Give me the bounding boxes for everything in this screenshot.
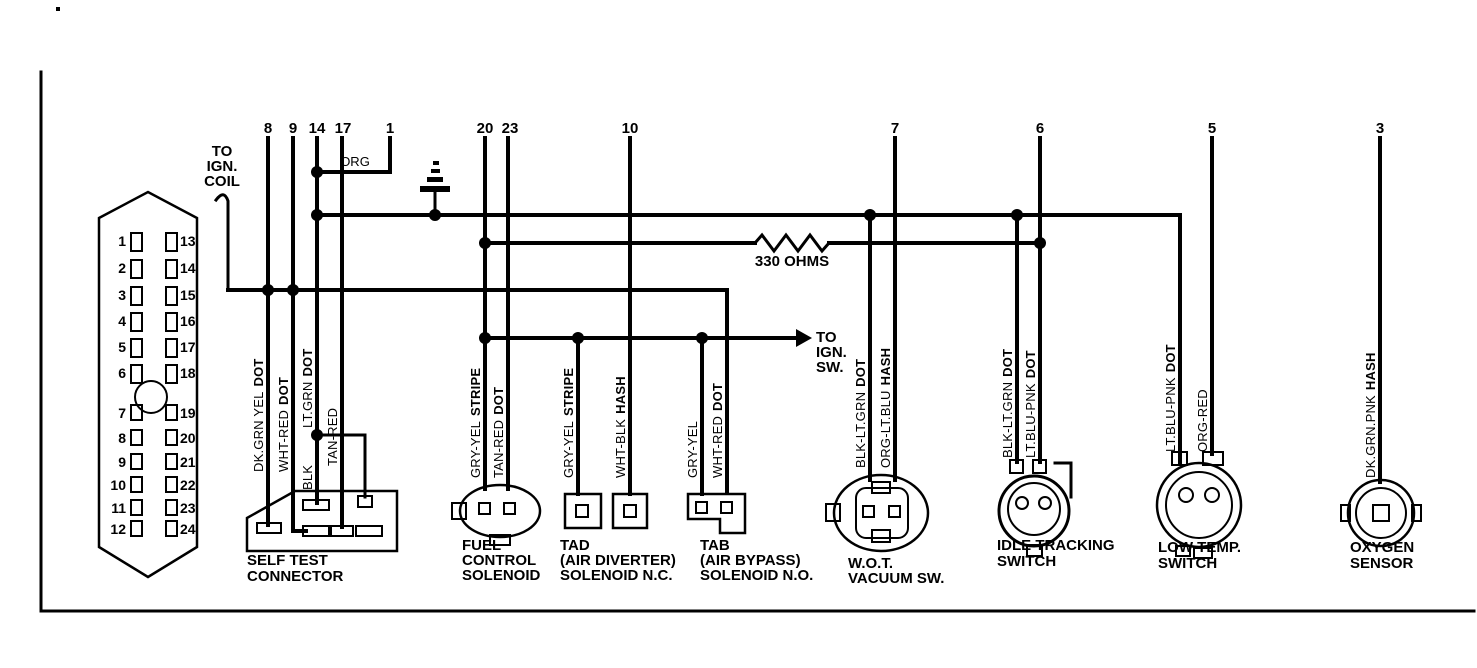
to-ign-sw-label: SW. (816, 359, 844, 376)
tad-solenoid: TAD (AIR DIVERTER) SOLENOID N.C. (560, 494, 676, 584)
low-temp-label: SWITCH (1158, 555, 1217, 572)
junction-dot (311, 166, 323, 178)
connector-right-slots (166, 233, 177, 536)
pin-number: 9 (118, 454, 126, 470)
wire-label: LT.GRNDOT (300, 348, 315, 428)
wire-label: ORG-RED (1195, 389, 1210, 452)
tad-label: SOLENOID N.C. (560, 567, 673, 584)
wire-color-labels: DK.GRN YELDOT WHT-REDDOT BLK LT.GRNDOT T… (251, 344, 1378, 490)
ground-symbol (420, 161, 450, 215)
circuit-pin-8: 8 (264, 120, 272, 137)
resistor-value-label: 330 OHMS (755, 253, 829, 270)
junction-dot (864, 209, 876, 221)
to-ign-coil-label: COIL (204, 173, 240, 190)
oxygen-label: SENSOR (1350, 555, 1414, 572)
self-test-connector: SELF TEST CONNECTOR (247, 491, 397, 585)
resistor-zigzag (755, 235, 829, 251)
junction-dot (287, 284, 299, 296)
wire-label: GRY-YELSTRIPE (561, 368, 576, 478)
pin-number: 10 (110, 477, 126, 493)
wire-label: GRY-YELSTRIPE (468, 368, 483, 478)
tad-terminal (624, 505, 636, 517)
tad-terminal (576, 505, 588, 517)
circuit-pin-6: 6 (1036, 120, 1044, 137)
idle-terminal (1039, 497, 1051, 509)
circuit-pin-9: 9 (289, 120, 297, 137)
oxygen-body (1348, 480, 1414, 546)
junction-dot (1011, 209, 1023, 221)
connector-pin-numbers: 1 2 3 4 5 6 7 8 9 10 11 12 13 14 15 16 1… (110, 233, 195, 537)
callouts: TO IGN. COIL ORG 330 OHMS TO IGN. SW. (204, 143, 847, 376)
circuit-pin-3: 3 (1376, 120, 1384, 137)
junction-dot (262, 284, 274, 296)
self-test-label: CONNECTOR (247, 568, 344, 585)
circuit-pin-23: 23 (502, 120, 519, 137)
pin-number: 4 (118, 313, 126, 329)
idle-terminal (1016, 497, 1028, 509)
low-temp-switch: LOW TEMP. SWITCH (1157, 452, 1241, 572)
ign-sw-arrow (796, 329, 812, 347)
ecu-connector-block: 1 2 3 4 5 6 7 8 9 10 11 12 13 14 15 16 1… (99, 192, 197, 577)
tab-solenoid: TAB (AIR BYPASS) SOLENOID N.O. (688, 494, 813, 584)
circuit-pin-numbers: 8 9 14 17 1 20 23 10 7 6 5 3 (264, 120, 1384, 137)
pin-number: 18 (180, 365, 196, 381)
fuel-solenoid-terminal (504, 503, 515, 514)
oxygen-sensor: OXYGEN SENSOR (1341, 480, 1421, 572)
wire-label: LT.BLU-PNKDOT (1023, 350, 1038, 458)
circuit-pin-14: 14 (309, 120, 326, 137)
page-speck (56, 7, 60, 11)
pin-number: 24 (180, 521, 196, 537)
pin-number: 16 (180, 313, 196, 329)
wire-label: DK.GRN YELDOT (251, 358, 266, 472)
junction-dot (479, 332, 491, 344)
wot-terminal (889, 506, 900, 517)
page-border (41, 7, 1474, 611)
junction-dots (262, 166, 1046, 441)
circuit-pin-17: 17 (335, 120, 352, 137)
wire-label: ORG-LT.BLUHASH (878, 348, 893, 468)
low-temp-inner (1166, 472, 1232, 538)
wire-label: WHT-BLKHASH (613, 376, 628, 478)
tab-terminal (696, 502, 707, 513)
fuel-solenoid-terminal (479, 503, 490, 514)
wot-vacuum-switch: W.O.T. VACUUM SW. (826, 475, 944, 587)
junction-dot (311, 429, 323, 441)
wire-to-ign-coil (216, 195, 228, 290)
wire-label: BLK-LT.GRNDOT (853, 359, 868, 468)
pin-number: 8 (118, 430, 126, 446)
tab-terminal (721, 502, 732, 513)
pin-number: 14 (180, 260, 196, 276)
wiring-diagram: 1 2 3 4 5 6 7 8 9 10 11 12 13 14 15 16 1… (0, 0, 1477, 668)
wot-terminal (863, 506, 874, 517)
org-wire-label: ORG (340, 154, 370, 169)
wiring-diagram-page: 1 2 3 4 5 6 7 8 9 10 11 12 13 14 15 16 1… (0, 0, 1477, 668)
pin-number: 20 (180, 430, 196, 446)
pin-number: 15 (180, 287, 196, 303)
circuit-pin-20: 20 (477, 120, 494, 137)
pin-number: 23 (180, 500, 196, 516)
junction-dot (696, 332, 708, 344)
connector-outline (99, 192, 197, 577)
tad-connector-left (565, 494, 601, 528)
connector-keyhole (135, 381, 167, 413)
pin-number: 13 (180, 233, 196, 249)
wire-label: WHT-REDDOT (710, 383, 725, 478)
circuit-pin-5: 5 (1208, 120, 1216, 137)
oxygen-label: OXYGEN (1350, 539, 1414, 556)
self-test-pin (356, 526, 382, 536)
low-temp-terminal (1205, 488, 1219, 502)
idle-tracking-switch: IDLE TRACKING SWITCH (997, 460, 1115, 570)
idle-label: SWITCH (997, 553, 1056, 570)
low-temp-body (1157, 463, 1241, 547)
pin-number: 19 (180, 405, 196, 421)
pin-number: 1 (118, 233, 126, 249)
circuit-pin-1: 1 (386, 120, 394, 137)
idle-label: IDLE TRACKING (997, 537, 1115, 554)
wire-label: TAN-RED (325, 408, 340, 466)
fuel-control-solenoid: FUEL CONTROL SOLENOID (452, 485, 541, 584)
pin-number: 21 (180, 454, 196, 470)
pin-number: 5 (118, 339, 126, 355)
low-temp-terminal (1179, 488, 1193, 502)
wot-body (834, 475, 928, 551)
junction-dot (311, 209, 323, 221)
circuit-pin-10: 10 (622, 120, 639, 137)
low-temp-label: LOW TEMP. (1158, 539, 1241, 556)
tab-label: SOLENOID N.O. (700, 567, 813, 584)
circuit-pin-7: 7 (891, 120, 899, 137)
pin-number: 11 (111, 500, 126, 516)
wot-label: VACUUM SW. (848, 570, 944, 587)
fuel-solenoid-body (460, 485, 540, 537)
pin-number: 7 (118, 405, 126, 421)
junction-dot (572, 332, 584, 344)
fuel-solenoid-label: SOLENOID (462, 567, 541, 584)
oxygen-inner (1356, 488, 1406, 538)
pin-number: 17 (180, 339, 196, 355)
wire-label: GRY-YEL (685, 421, 700, 478)
wire-label: DK.GRN.PNKHASH (1363, 352, 1378, 478)
wot-notch (872, 530, 890, 542)
oxygen-terminal (1373, 505, 1389, 521)
wire-label: BLK (300, 465, 315, 490)
self-test-label: SELF TEST (247, 552, 328, 569)
wire-label: TAN-REDDOT (491, 387, 506, 478)
junction-dot (1034, 237, 1046, 249)
wire-label: BLK-LT.GRNDOT (1000, 349, 1015, 458)
junction-dot (479, 237, 491, 249)
idle-inner (1008, 483, 1060, 535)
pin-number: 3 (118, 287, 126, 303)
wire-label: LT.BLU-PNKDOT (1163, 344, 1178, 452)
pin-number: 22 (180, 477, 196, 493)
pin-number: 2 (118, 260, 126, 276)
wire-label: WHT-REDDOT (276, 377, 291, 472)
tad-connector-right (613, 494, 647, 528)
pin-number: 6 (118, 365, 126, 381)
pin-number: 12 (110, 521, 126, 537)
